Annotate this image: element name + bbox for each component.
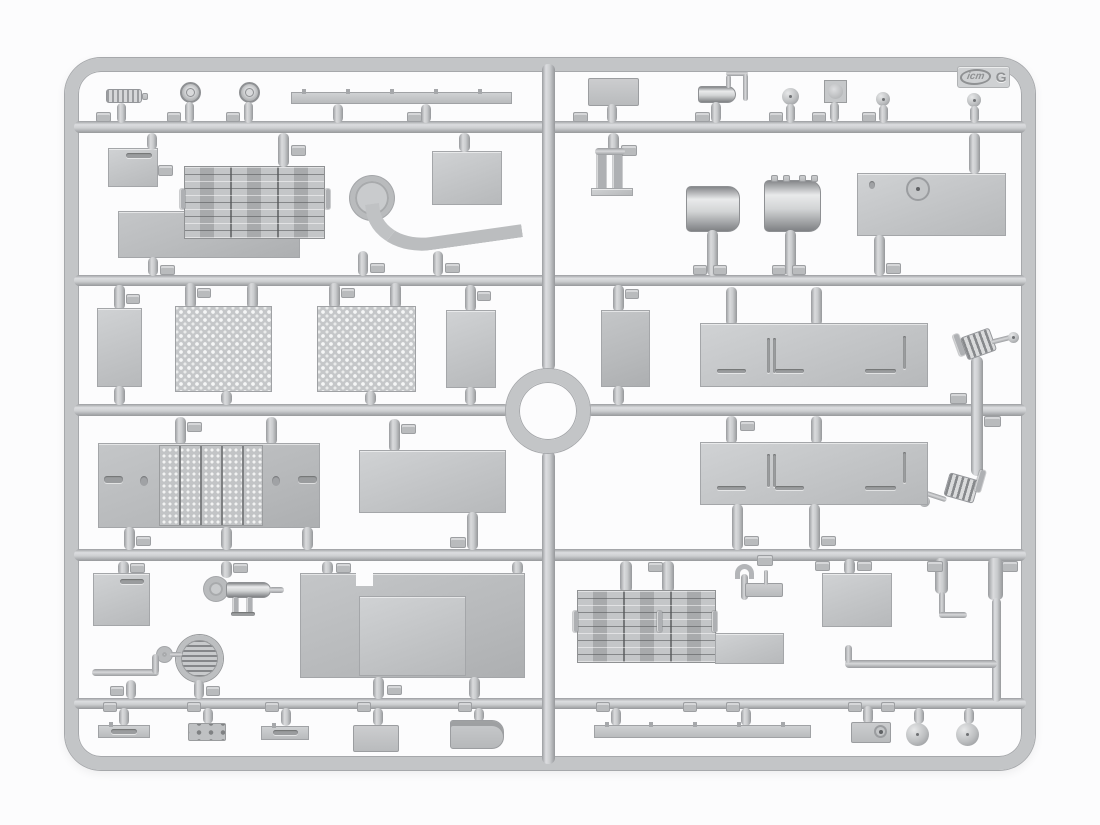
damper-ball-end	[1008, 332, 1019, 343]
sprue-photo: icm G	[0, 0, 1100, 825]
gate-tab	[772, 265, 786, 275]
sprue-stub	[221, 391, 232, 405]
perforated-plate-part	[175, 306, 272, 392]
gate-tab	[950, 393, 967, 404]
clamp-rail-part	[594, 725, 811, 738]
sprue-stub	[620, 561, 632, 593]
sprue-stub	[221, 561, 232, 578]
sprue-stub	[221, 527, 232, 550]
sprue-stub	[124, 527, 135, 550]
rail-3-left	[74, 404, 510, 416]
sprue-stub	[244, 102, 253, 123]
sprue-stub	[203, 708, 213, 724]
small-box-part	[353, 725, 399, 752]
gate-tab	[1002, 561, 1018, 572]
gate-tab	[387, 685, 402, 695]
cabinet-handle	[573, 611, 578, 632]
plate-hole	[272, 476, 280, 486]
sprue-stub	[278, 133, 289, 167]
gate-tab	[744, 536, 759, 546]
side-plate-part	[97, 308, 142, 387]
drawer-cabinet-part	[577, 590, 716, 663]
cabinet-handle	[180, 189, 185, 209]
gate-tab	[206, 686, 220, 696]
gate-tab	[648, 562, 663, 572]
plate-slot	[903, 452, 906, 483]
gate-tab	[984, 416, 1001, 427]
gate-tab	[757, 555, 773, 566]
gate-tab	[336, 563, 351, 573]
sprue-stub	[786, 104, 795, 123]
sprue-stub	[874, 235, 885, 276]
extinguisher-body-part	[698, 86, 736, 103]
manufacturer-logo-tab: icm G	[957, 66, 1010, 88]
muffler-nub	[142, 93, 148, 100]
gate-tab	[713, 265, 727, 275]
hook-rod-horizontal	[939, 612, 967, 618]
valve-body-part	[745, 583, 783, 597]
gate-tab	[769, 112, 783, 122]
sprue-stub	[465, 387, 476, 405]
hull-plate-part	[700, 323, 928, 387]
gate-tab	[130, 563, 145, 573]
sprue-stub	[970, 106, 979, 123]
gate-tab	[886, 263, 901, 274]
sprue-stub	[175, 417, 186, 445]
ball-knob-part	[782, 88, 799, 105]
bracket-channel	[597, 150, 606, 192]
louvre-grille-detail	[159, 445, 263, 526]
panel-notch	[356, 572, 373, 586]
valve-handle-arc	[735, 564, 754, 579]
sprue-stub	[147, 133, 157, 150]
roof-plate-part	[857, 173, 1006, 236]
rounded-box-part	[450, 720, 504, 749]
flat-panel-part	[822, 573, 892, 627]
sprue-stub	[732, 504, 743, 550]
flat-panel-part	[359, 450, 506, 513]
mg-muzzle	[269, 587, 284, 593]
sprue-stub	[465, 285, 476, 312]
fan-handle-rod	[170, 652, 182, 657]
gate-tab	[848, 702, 862, 712]
plate-slot	[773, 338, 776, 373]
gate-tab	[862, 112, 876, 122]
gate-tab	[450, 537, 466, 548]
runner-right-bottom	[992, 598, 1001, 702]
gauge-part	[239, 82, 260, 103]
gate-tab	[927, 561, 943, 572]
sprue-stub	[879, 105, 888, 123]
small-plate-part	[432, 151, 502, 205]
sprue-stub	[358, 251, 368, 276]
cabinet-handle	[712, 611, 717, 632]
gate-tab	[401, 424, 416, 434]
gate-tab	[341, 288, 355, 298]
rail-3-right	[586, 404, 1026, 416]
box-detail	[120, 579, 144, 584]
gate-tab	[370, 263, 385, 273]
gauge-part	[180, 82, 201, 103]
clamp-plate-slot	[111, 729, 137, 734]
cabinet-handle	[657, 611, 662, 632]
side-plate-part	[446, 310, 496, 388]
runner-right-bottom-stub	[988, 558, 1003, 600]
sprue-stub	[613, 285, 624, 312]
gate-tab	[357, 702, 371, 712]
center-ring	[506, 369, 590, 453]
sprue-stub	[607, 104, 617, 123]
gate-tab	[693, 265, 707, 275]
sprue-stub	[433, 251, 443, 276]
mg-wheel-detail	[204, 577, 228, 601]
plate-slot	[865, 369, 896, 373]
gate-tab	[110, 686, 124, 696]
mg-mount-base	[231, 612, 255, 616]
tank-fitting	[799, 175, 806, 182]
sprue-stub	[194, 680, 204, 699]
plate-slot	[717, 369, 746, 373]
small-ball-part	[967, 93, 981, 107]
sprue-stub	[266, 417, 277, 445]
icm-brand-logo: icm	[959, 69, 993, 85]
fuel-tank-part	[764, 180, 821, 232]
runner-right-mid	[971, 356, 983, 476]
towing-rod-part	[92, 669, 159, 676]
hatch-cap-detail	[906, 177, 930, 201]
sprue-stub	[964, 708, 974, 724]
gate-tab	[103, 702, 117, 712]
gate-tab	[265, 702, 279, 712]
extinguisher-neck	[726, 75, 731, 88]
plate-slot	[298, 476, 317, 483]
machine-gun-part	[226, 582, 271, 598]
plate-hole	[140, 476, 148, 486]
sprue-stub	[830, 102, 839, 122]
gate-tab	[167, 112, 181, 122]
plate-slot	[767, 338, 770, 373]
bracket-crossbar	[595, 148, 625, 155]
sprue-stub	[114, 285, 125, 310]
sprue-stub	[126, 680, 136, 699]
sprue-stub	[333, 104, 343, 123]
long-pipe-end	[845, 645, 852, 663]
gate-tab	[187, 702, 201, 712]
sprue-stub	[914, 708, 924, 724]
plate-slot	[767, 454, 770, 487]
rivet-cluster-part	[188, 723, 226, 741]
sprue-stub	[373, 708, 383, 726]
gate-tab	[740, 421, 755, 431]
fuel-tank-part	[686, 186, 740, 232]
gate-tab	[573, 112, 588, 122]
floor-inner-panel	[359, 596, 466, 676]
clamp-plate-slot	[273, 730, 298, 735]
plate-slot	[773, 454, 776, 487]
sprue-stub	[969, 133, 980, 174]
cabinet-step-plate	[715, 633, 784, 664]
wheel-ball-part	[906, 723, 929, 746]
sprue-stub	[117, 103, 126, 123]
gate-tab	[160, 265, 175, 275]
sprue-letter: G	[996, 69, 1007, 85]
gate-tab	[726, 702, 740, 712]
gate-tab	[197, 288, 211, 298]
sprue-stub	[811, 416, 822, 444]
bracket-channel	[613, 150, 622, 192]
plate-slot	[104, 476, 123, 483]
gate-tab	[96, 112, 111, 122]
sprue-stub	[114, 386, 125, 405]
sprue-stub	[302, 527, 313, 550]
sprue-stub	[373, 677, 384, 699]
sprue-stub	[148, 257, 158, 276]
gate-tab	[458, 702, 472, 712]
headlight-part	[824, 80, 847, 103]
gate-tab	[136, 536, 151, 546]
gate-tab	[158, 165, 173, 176]
side-plate-part	[601, 310, 650, 387]
gate-tab	[187, 422, 202, 432]
tank-fitting	[783, 175, 790, 182]
gate-tab	[291, 145, 306, 156]
blower-fan-part	[176, 635, 223, 682]
sprue-stub	[662, 561, 674, 593]
plate-slot	[865, 486, 896, 490]
gate-tab	[881, 702, 895, 712]
center-divider-top	[542, 64, 555, 371]
gate-tab	[812, 112, 826, 122]
latch-detail	[874, 725, 887, 738]
sprue-stub	[459, 133, 470, 152]
sprue-stub	[811, 287, 822, 326]
battery-detail	[126, 153, 152, 158]
bracket-base	[591, 188, 633, 196]
small-ball-part	[876, 92, 890, 106]
gate-tab	[625, 289, 639, 299]
sprue-stub	[726, 416, 737, 444]
clamp-strip-part	[291, 92, 512, 104]
stowage-box-part	[588, 78, 639, 106]
gate-tab	[407, 112, 422, 122]
plate-slot	[775, 486, 804, 490]
hull-plate-part	[700, 442, 928, 505]
plate-hole	[869, 181, 875, 189]
gate-tab	[695, 112, 710, 122]
gate-tab	[821, 536, 836, 546]
gate-tab	[445, 263, 460, 273]
sprue-stub	[389, 419, 400, 452]
center-divider-bottom	[542, 451, 555, 764]
gate-tab	[233, 563, 248, 573]
drawer-cabinet-part	[184, 166, 325, 239]
sprue-stub	[726, 287, 737, 326]
sprue-stub	[711, 102, 721, 123]
plate-slot	[775, 369, 804, 373]
sprue-stub	[467, 512, 478, 550]
wheel-ball-part	[956, 723, 979, 746]
sprue-stub	[809, 504, 820, 550]
sprue-stub	[469, 677, 480, 699]
long-pipe-part	[845, 660, 997, 668]
gate-tab	[596, 702, 610, 712]
perforated-plate-part	[317, 306, 416, 392]
gate-tab	[477, 291, 491, 301]
muffler-part	[106, 89, 142, 103]
gate-tab	[857, 561, 872, 571]
sprue-stub	[613, 386, 624, 405]
valve-stem	[764, 570, 768, 585]
plate-slot	[903, 336, 906, 369]
tank-fitting	[771, 175, 778, 182]
sprue-stub	[421, 104, 431, 123]
gate-tab	[126, 294, 140, 304]
gate-tab	[815, 561, 830, 571]
extinguisher-hose	[743, 74, 748, 101]
towing-rod-hook	[152, 654, 159, 674]
sprue-stub	[365, 391, 376, 405]
plate-slot	[717, 486, 746, 490]
gate-tab	[226, 112, 240, 122]
cabinet-handle	[325, 189, 330, 209]
gate-tab	[683, 702, 697, 712]
tank-fitting	[811, 175, 818, 182]
sprue-stub	[185, 102, 194, 123]
gate-tab	[792, 265, 806, 275]
